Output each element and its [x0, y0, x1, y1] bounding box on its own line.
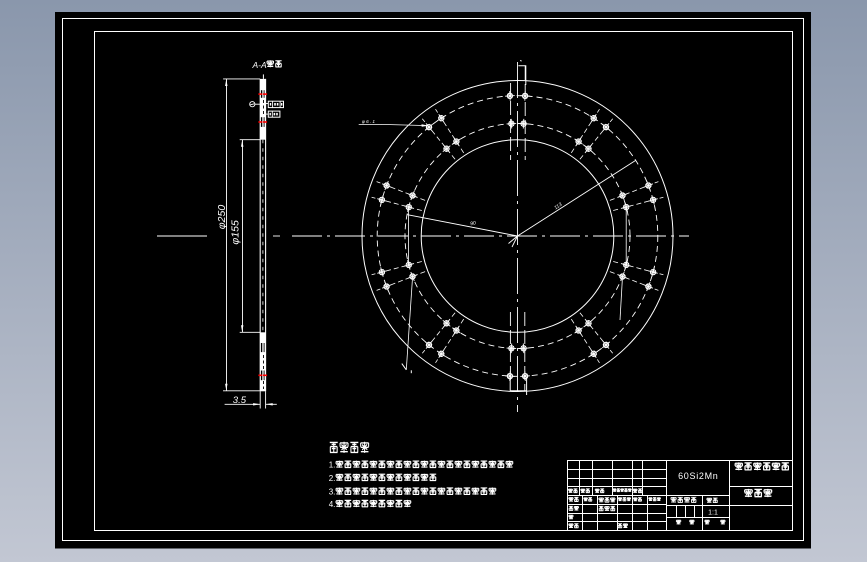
- svg-text:4.: 4.: [329, 500, 336, 509]
- svg-text:1:1: 1:1: [708, 509, 718, 516]
- svg-text:φ155: φ155: [229, 220, 241, 245]
- svg-text:A-A: A-A: [252, 60, 268, 70]
- svg-text:2.: 2.: [329, 474, 336, 483]
- svg-text:φ6.1: φ6.1: [362, 119, 375, 124]
- svg-text:3.5: 3.5: [233, 395, 247, 406]
- svg-text:3.: 3.: [329, 488, 336, 497]
- svg-text:1.: 1.: [329, 461, 336, 470]
- svg-text:60Si2Mn: 60Si2Mn: [678, 471, 718, 481]
- svg-text:φ250: φ250: [216, 205, 228, 230]
